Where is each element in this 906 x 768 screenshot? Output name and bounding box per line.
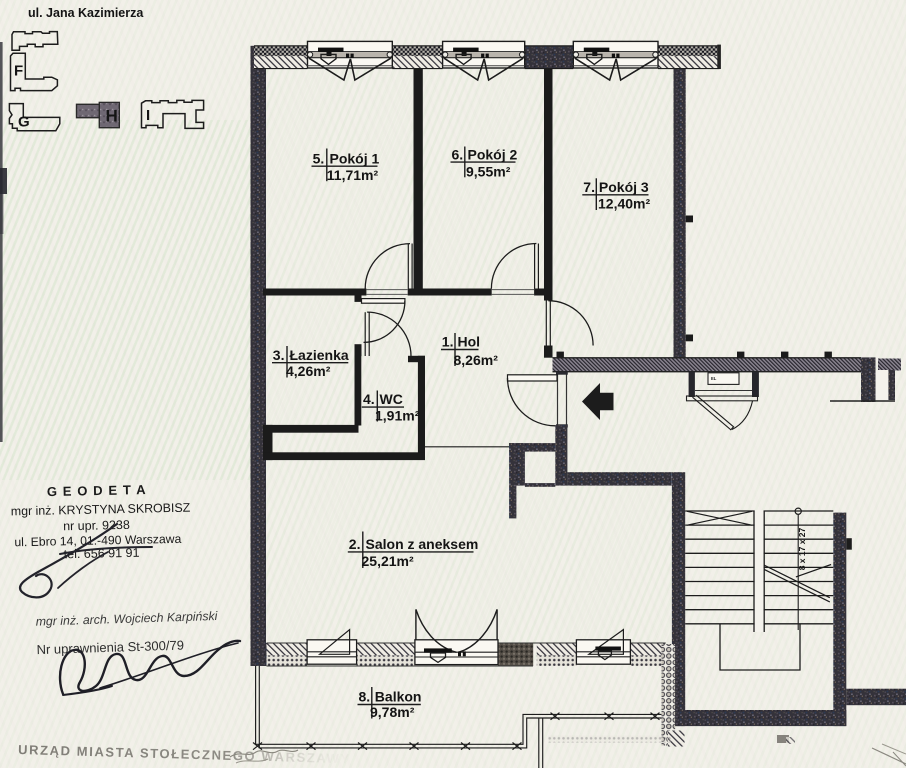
svg-text:I: I [146,107,150,124]
svg-text:F: F [14,63,23,80]
svg-text:9,55m²: 9,55m² [466,163,511,179]
svg-text:Nr uprawnienia St-300/79: Nr uprawnienia St-300/79 [36,638,184,658]
svg-text:6.: 6. [452,146,464,162]
svg-text:4,26m²: 4,26m² [286,363,331,379]
svg-text:25,21m²: 25,21m² [362,553,414,569]
svg-text:2.: 2. [349,536,361,552]
svg-text:Balkon: Balkon [375,689,422,705]
svg-text:Łazienka: Łazienka [290,347,349,363]
svg-text:H: H [106,107,118,126]
svg-text:1.: 1. [442,334,454,350]
svg-text:8,26m²: 8,26m² [454,352,499,368]
svg-text:nr upr. 9238: nr upr. 9238 [63,518,130,533]
svg-text:ul. Jana Kazimierza: ul. Jana Kazimierza [28,6,144,20]
svg-text:8 x 17 x 27: 8 x 17 x 27 [797,527,807,570]
svg-text:7.: 7. [583,179,595,195]
svg-text:3.: 3. [273,347,285,363]
svg-text:1,91m²: 1,91m² [375,407,420,423]
svg-text:5.: 5. [313,150,325,166]
svg-text:mgr inż. KRYSTYNA SKROBISZ: mgr inż. KRYSTYNA SKROBISZ [11,501,191,519]
svg-text:12,40m²: 12,40m² [598,196,650,212]
svg-text:mgr inż. arch. Wojciech Karpiń: mgr inż. arch. Wojciech Karpiński [35,609,218,629]
svg-text:Pokój 1: Pokój 1 [330,150,380,166]
svg-text:9,78m²: 9,78m² [370,704,415,720]
svg-text:8.: 8. [359,689,371,705]
svg-text:Pokój 2: Pokój 2 [468,146,518,162]
svg-text:G E O D E T A: G E O D E T A [47,482,147,499]
svg-text:Salon z aneksem: Salon z aneksem [366,536,479,552]
svg-text:11,71m²: 11,71m² [327,167,379,183]
svg-text:WC: WC [380,391,403,407]
svg-text:G: G [18,114,30,131]
svg-text:Pokój 3: Pokój 3 [599,179,649,195]
svg-text:EL: EL [711,376,717,381]
svg-text:Hol: Hol [458,334,481,350]
svg-text:URZĄD MIASTA STOŁECZNEGO WARSZ: URZĄD MIASTA STOŁECZNEGO WARSZAWY [18,742,351,766]
svg-text:4.: 4. [363,391,375,407]
